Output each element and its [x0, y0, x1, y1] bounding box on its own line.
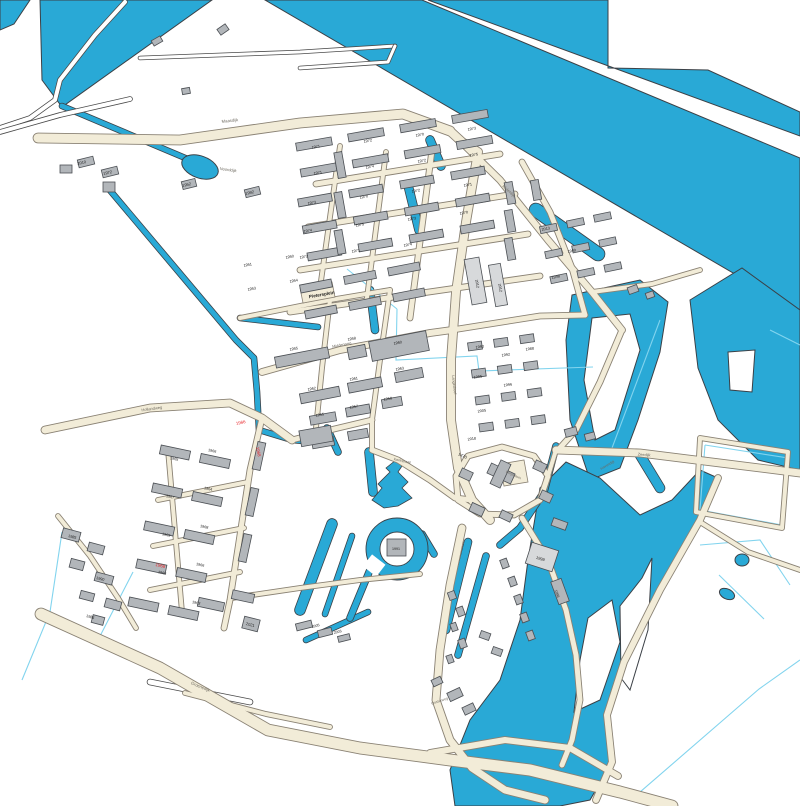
- year-label: 1995: [473, 374, 482, 379]
- building-row: [451, 166, 486, 180]
- year-label: 1991: [392, 547, 400, 551]
- building: [317, 627, 332, 637]
- year-label: 1990: [475, 344, 484, 349]
- year-label: 1950: [285, 254, 294, 260]
- building-row: [593, 212, 611, 222]
- building: [447, 687, 463, 701]
- year-label: 1996: [503, 382, 512, 387]
- building-row: [527, 388, 542, 398]
- year-label: 1954: [289, 278, 298, 284]
- building: [479, 631, 491, 641]
- building: [79, 590, 95, 601]
- year-label: 2003: [333, 629, 342, 635]
- building-row: [128, 597, 159, 612]
- year-label: 1970: [415, 132, 424, 137]
- island-harbor-islet: [728, 350, 755, 392]
- building: [469, 502, 485, 516]
- year-label: 1971: [313, 170, 322, 175]
- year-label: 1963: [192, 600, 201, 606]
- boundary-line: [632, 660, 800, 799]
- year-label: 1955: [289, 346, 298, 352]
- building-row: [497, 364, 512, 374]
- year-label: 1992: [501, 352, 510, 357]
- building-row: [409, 229, 444, 243]
- year-label: 1973: [307, 200, 316, 205]
- building-row: [566, 218, 584, 228]
- year-label: 1974: [365, 164, 374, 169]
- building: [295, 620, 312, 631]
- year-label: 1958: [347, 336, 356, 342]
- building-row: [523, 361, 538, 371]
- building: [60, 165, 72, 173]
- road-east-exit: [700, 522, 800, 570]
- building: [347, 428, 368, 440]
- place-label: Noorddijk: [219, 166, 236, 173]
- water-corner-notch: [0, 0, 30, 30]
- building: [217, 24, 229, 35]
- year-label: 1986: [86, 614, 95, 620]
- building: [504, 209, 516, 232]
- year-label: 1972: [411, 188, 420, 193]
- year-label: 1965: [158, 570, 167, 576]
- year-label: 1949: [567, 248, 576, 254]
- year-label: 1972: [299, 254, 308, 259]
- building-row: [531, 415, 546, 425]
- year-label: 2005: [311, 623, 320, 629]
- year-label: 1951: [243, 262, 252, 268]
- building-row: [577, 268, 595, 278]
- pond: [718, 586, 737, 602]
- building-row: [191, 491, 222, 506]
- boundary-line: [22, 532, 62, 680]
- building-row: [505, 418, 520, 428]
- building: [530, 179, 541, 200]
- building-row: [494, 337, 509, 347]
- building-row: [604, 262, 622, 272]
- building: [337, 634, 350, 643]
- canal-center-south: [369, 452, 373, 492]
- road-park-lane: [232, 574, 420, 598]
- building: [182, 87, 191, 94]
- canal-park-strip-a: [300, 524, 332, 610]
- year-label: 1974: [403, 242, 412, 247]
- building: [103, 182, 115, 192]
- year-label: 1966: [208, 448, 217, 454]
- building: [231, 590, 254, 603]
- building: [508, 576, 518, 587]
- year-label: 1973: [467, 126, 476, 131]
- building-row: [184, 529, 215, 544]
- year-label: 2005: [477, 408, 486, 413]
- year-label: 2018: [467, 436, 476, 441]
- year-label: 1971: [351, 248, 360, 253]
- building-row: [520, 334, 535, 344]
- year-label: 1969: [162, 532, 171, 538]
- year-label: 1971: [311, 144, 320, 149]
- year-label: 1988: [525, 346, 534, 351]
- building-row: [501, 391, 516, 401]
- building: [450, 622, 458, 632]
- building: [69, 558, 85, 570]
- year-label: 1972: [363, 138, 372, 143]
- building: [514, 594, 524, 605]
- red-year-label: 1966: [235, 419, 246, 426]
- canal-moat-gap: [640, 455, 660, 488]
- year-label: 1953: [247, 286, 256, 292]
- year-label: 1970: [359, 194, 368, 199]
- map-canvas[interactable]: Pietersplein1470DorpspleinMaasdijkNoordd…: [0, 0, 800, 806]
- year-label: 1968: [200, 524, 209, 530]
- building: [446, 654, 454, 664]
- building: [462, 703, 476, 715]
- map-viewport[interactable]: Pietersplein1470DorpspleinMaasdijkNoordd…: [0, 0, 800, 806]
- building-row: [479, 422, 494, 432]
- building: [504, 237, 516, 260]
- building: [334, 192, 346, 219]
- canal-nw-feeder: [62, 106, 190, 160]
- pond: [735, 554, 749, 566]
- building: [197, 597, 224, 611]
- building: [500, 558, 510, 569]
- building: [456, 606, 466, 617]
- building-row: [599, 237, 617, 247]
- place-label: Maasdijk: [221, 117, 239, 124]
- year-label: 1975: [355, 222, 364, 227]
- year-label: 1966: [196, 562, 205, 568]
- building: [491, 647, 503, 657]
- building-row: [475, 395, 490, 405]
- year-label: 1961: [349, 376, 358, 382]
- building-row: [199, 453, 230, 468]
- road-mid-v-street2: [316, 300, 330, 428]
